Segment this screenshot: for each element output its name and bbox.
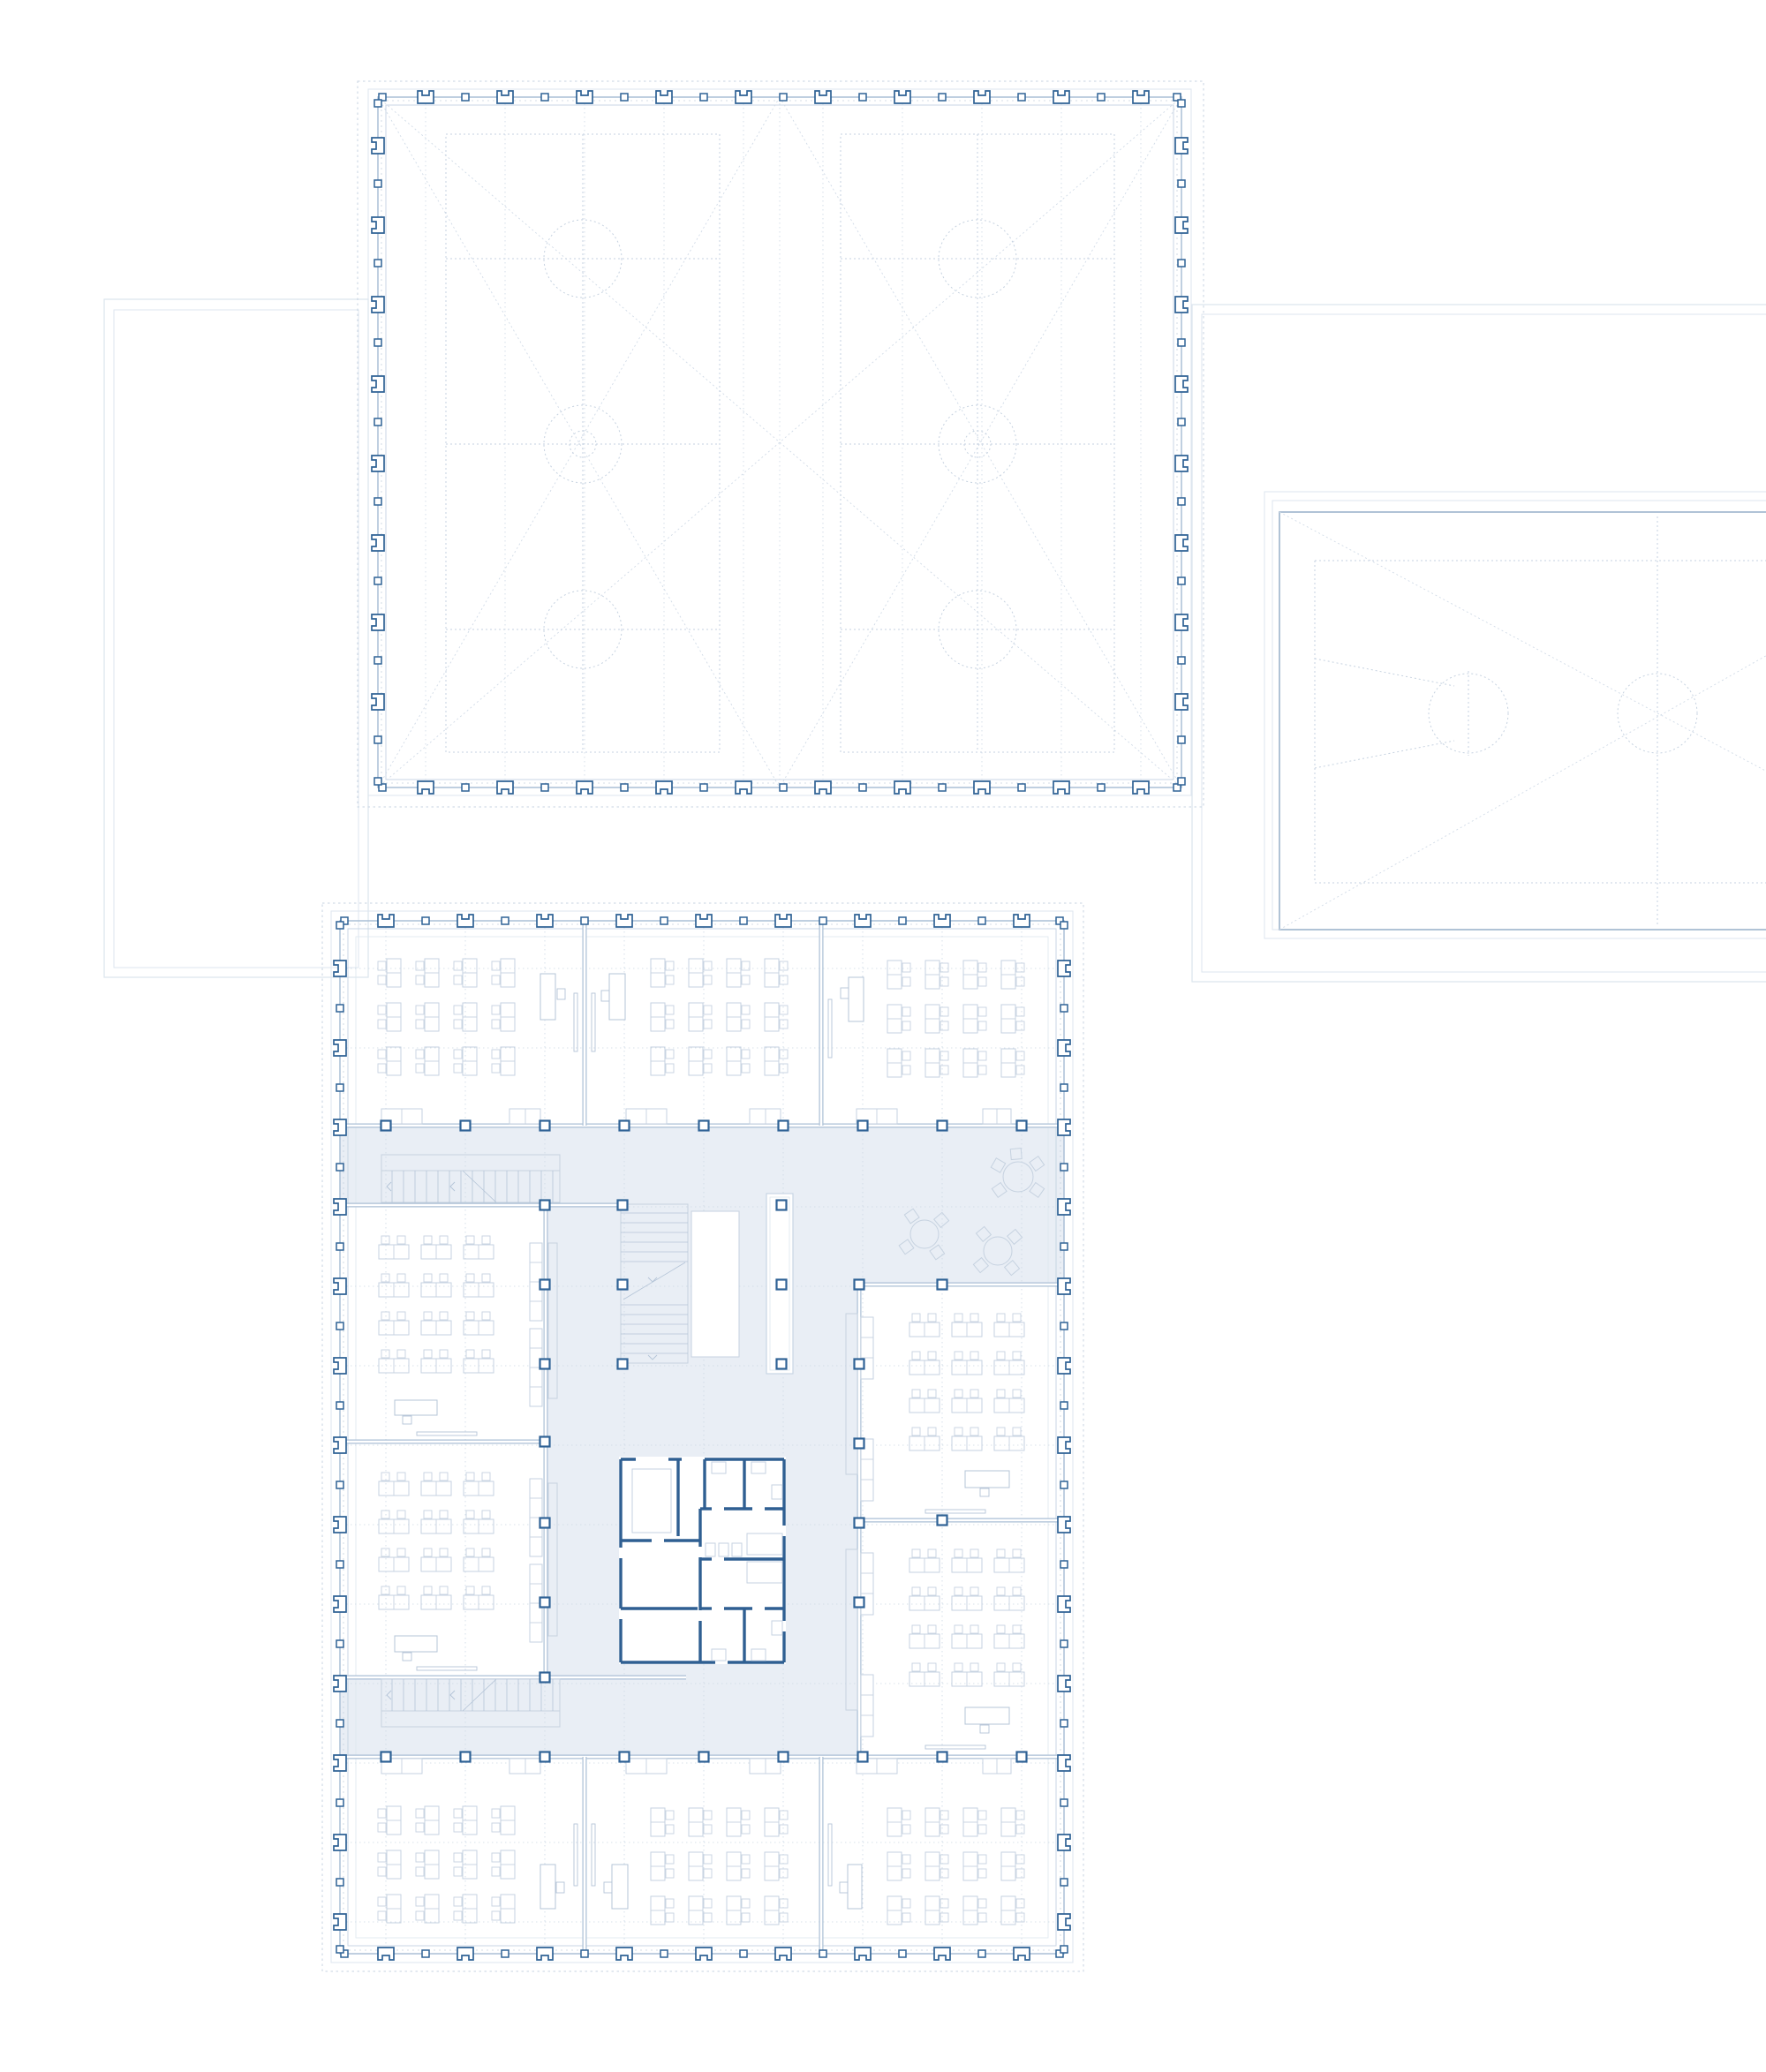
floor-plan-sheet [0,0,1766,2072]
school-core [619,1457,786,1664]
practice-court [1264,492,1766,938]
floor-plan-canvas [0,0,1766,2072]
annex-left-wing [104,299,368,977]
annex-right-wing [1192,305,1766,982]
gym-hall-base [358,81,1204,807]
